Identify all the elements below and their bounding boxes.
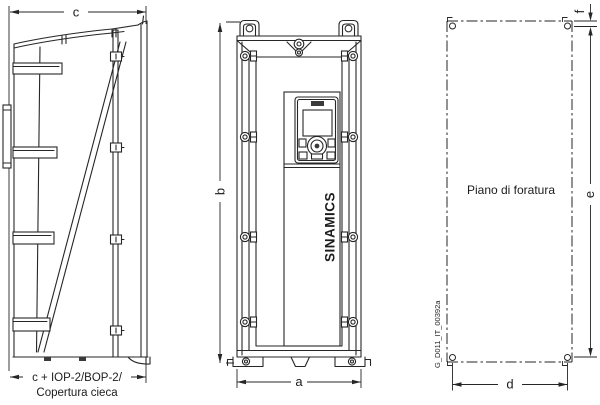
side-view: c — [3, 5, 150, 400]
dim-e: e — [574, 27, 597, 357]
panel-button — [312, 154, 323, 159]
panel-button — [327, 152, 335, 159]
panel-button — [299, 152, 307, 159]
dim-label-c: c — [73, 5, 80, 20]
panel-button — [299, 139, 306, 147]
dim-c-total: c + IOP-2/BOP-2/ Copertura cieca — [10, 364, 146, 399]
foot — [79, 357, 86, 361]
top-screw — [287, 39, 311, 56]
connector-block — [3, 105, 11, 168]
dim-label-e: e — [582, 191, 597, 198]
plan-title: Piano di foratura — [467, 183, 555, 197]
dim-d: d — [453, 363, 568, 392]
dim-label-f: f — [572, 9, 587, 13]
drill-hole-top-left — [450, 23, 456, 29]
dim-b: b — [213, 22, 241, 363]
dimension-drawing-page: c — [0, 0, 600, 405]
panel-display — [303, 110, 332, 136]
dim-label-b: b — [213, 188, 228, 195]
foot — [44, 357, 51, 361]
bottom-rail — [228, 351, 371, 367]
mounting-tab-left — [240, 21, 259, 37]
brand-label: SINAMICS — [323, 192, 338, 262]
operator-panel — [295, 97, 338, 163]
dim-f: f — [572, 4, 597, 27]
dim-label-c-total: c + IOP-2/BOP-2/ — [32, 372, 123, 384]
drill-plan: Piano di foratura G_D011_IT_00392a f e d — [433, 4, 597, 392]
drill-hole-bottom-right — [565, 355, 571, 361]
dim-c: c — [9, 5, 146, 372]
mounting-hole — [246, 25, 253, 32]
doc-id-label: G_D011_IT_00392a — [433, 300, 442, 368]
panel-slot — [311, 101, 324, 106]
mounting-tab-right — [339, 21, 358, 37]
front-view-body: SINAMICS — [228, 21, 371, 367]
dim-caption-copertura: Copertura cieca — [36, 387, 118, 399]
drill-hole-top-right — [565, 23, 571, 29]
side-view-body — [3, 16, 150, 364]
front-view: b — [213, 21, 371, 390]
dim-a: a — [237, 369, 361, 389]
mounting-hole — [345, 25, 352, 32]
dim-label-a: a — [295, 374, 303, 389]
drill-hole-bottom-left — [450, 355, 456, 361]
dimension-drawing: c — [0, 0, 600, 405]
panel-button — [328, 139, 335, 147]
dim-label-d: d — [506, 377, 513, 392]
